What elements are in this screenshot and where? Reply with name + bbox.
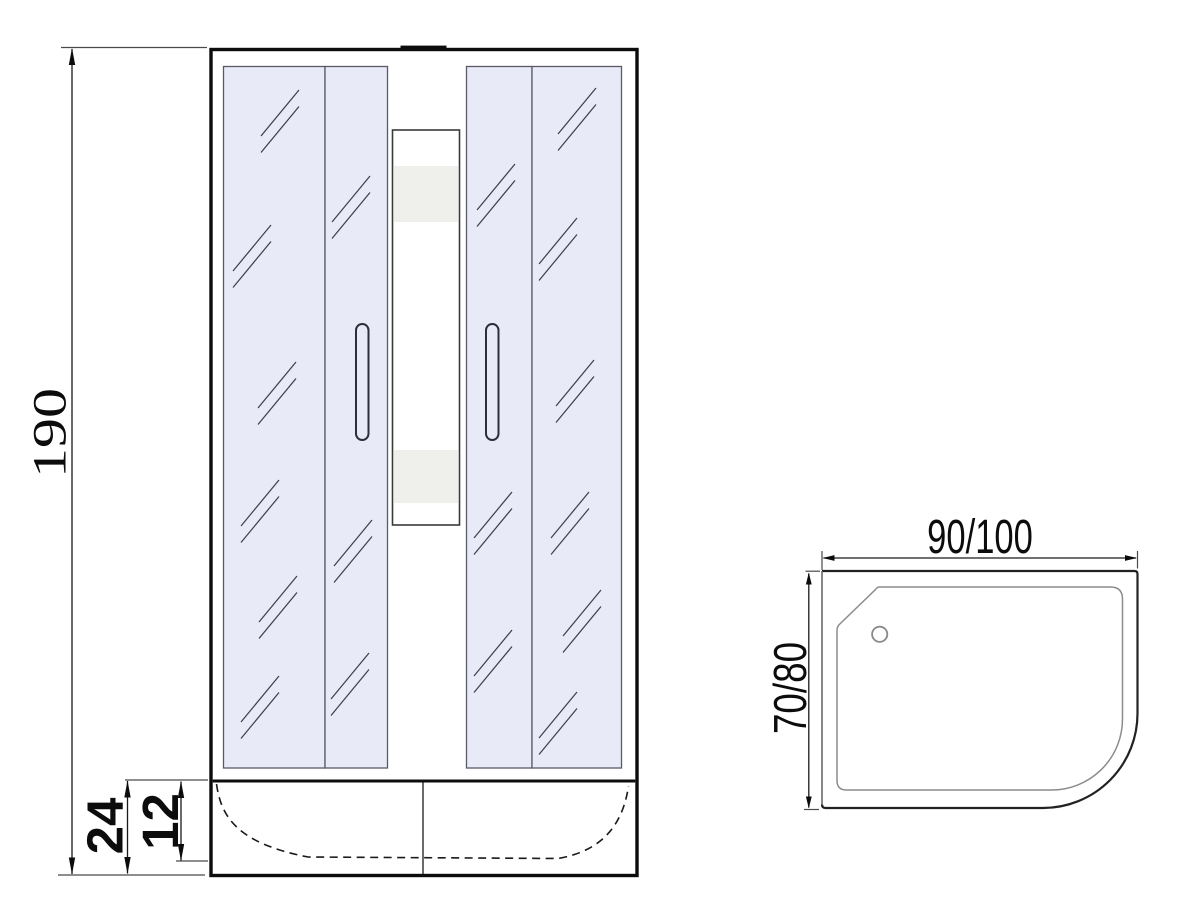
svg-text:24: 24 — [77, 797, 134, 854]
svg-text:90/100: 90/100 — [927, 509, 1033, 563]
svg-text:12: 12 — [132, 793, 189, 850]
svg-text:190: 190 — [23, 388, 76, 478]
svg-text:70/80: 70/80 — [764, 642, 816, 734]
